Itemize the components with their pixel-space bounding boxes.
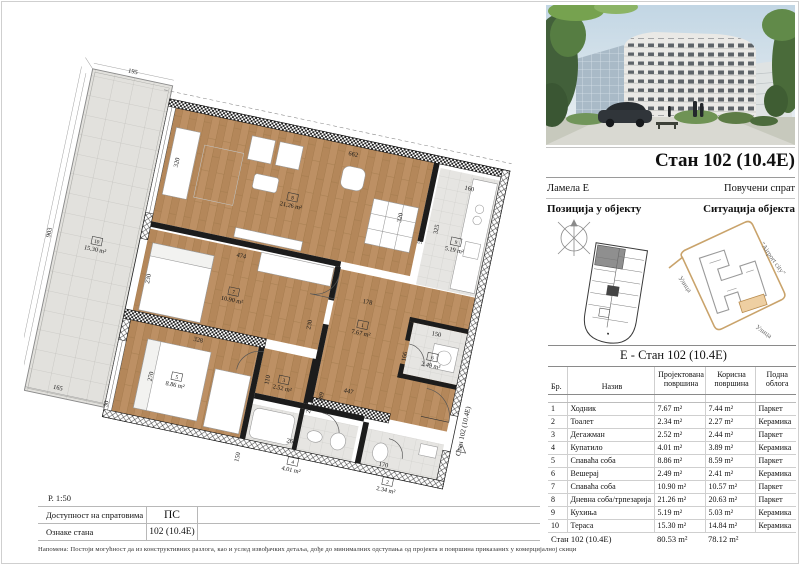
position-section-label: Позиција у објекту — [547, 203, 641, 215]
availability-label: Доступност на спратовима — [38, 507, 146, 523]
table-row: 9Кухиња5.19 m²5.03 m²Керамика — [548, 507, 796, 520]
subtitle-row: Ламела Е Повучени спрат — [547, 183, 795, 194]
plan-rotated-group: 1959031653066232032051116032547423023017… — [24, 57, 530, 494]
disclaimer-note: Напомена: Постоји могућност да из констр… — [38, 546, 783, 553]
building-photo — [546, 5, 795, 145]
table-row: 5Спаваћа соба8.86 m²8.59 m²Паркет — [548, 455, 796, 468]
availability-value: ПС — [146, 507, 198, 523]
col-flooring: Подна облога — [755, 367, 796, 395]
total-label: Стан 102 (10.4Е) — [548, 533, 654, 547]
area-table-body: 1Ходник7.67 m²7.44 m²Паркет2Тоалет2.34 m… — [548, 403, 796, 533]
dimension-label: 150 — [233, 452, 242, 463]
svg-text:4: 4 — [291, 459, 295, 465]
col-useful: Корисна површина — [705, 367, 755, 395]
area-table-header: Бр. Назив Пројектована површина Корисна … — [548, 367, 796, 395]
total-flooring — [755, 533, 796, 547]
dimension-label: 195 — [127, 67, 138, 76]
col-no: Бр. — [548, 367, 567, 395]
availability-row: Доступност на спратовима ПС — [38, 506, 540, 524]
highlighted-unit — [595, 245, 626, 269]
area-table: Е - Стан 102 (10.4Е) Бр. Назив Пројектов… — [548, 345, 796, 546]
table-row: 7Спаваћа соба10.90 m²10.57 m²Паркет — [548, 481, 796, 494]
svg-text:4.01 m²: 4.01 m² — [281, 465, 301, 476]
total-row: Стан 102 (10.4Е) 80.53 m² 78.12 m² — [548, 533, 796, 547]
unit-row: Ознаке стана 102 (10.4Е) — [38, 524, 540, 541]
situation-diagram: "Airport city" Улица Улица — [663, 216, 795, 346]
area-table-title: Е - Стан 102 (10.4Е) — [548, 346, 796, 367]
col-name: Назив — [567, 367, 654, 395]
lamela-label: Ламела Е — [547, 183, 589, 194]
table-row: 1Ходник7.67 m²7.44 m²Паркет — [548, 403, 796, 416]
situation-section-label: Ситуација објекта — [703, 203, 795, 215]
floor-plan: 1959031653066232032051116032547423023017… — [24, 52, 544, 494]
availability-table: Доступност на спратовима ПС Ознаке стана… — [38, 506, 540, 541]
svg-text:2: 2 — [385, 480, 389, 486]
dimension-label: 903 — [45, 227, 54, 238]
divider-under-title — [546, 177, 795, 178]
divider-under-photo — [546, 147, 795, 148]
total-useful: 78.12 m² — [705, 533, 755, 547]
scale-label: Р. 1:50 — [48, 493, 71, 503]
main-building-windows — [624, 38, 756, 116]
sheet-title: Стан 102 (10.4Е) — [546, 150, 795, 172]
section-labels-row: Позиција у објекту Ситуација објекта — [547, 203, 795, 215]
unit-label: Ознаке стана — [38, 524, 146, 540]
apartment-datasheet: 1959031653066232032051116032547423023017… — [0, 0, 800, 565]
position-diagram — [548, 216, 663, 346]
total-projected: 80.53 m² — [654, 533, 705, 547]
spacer-row — [548, 395, 796, 403]
lamela-outline — [581, 243, 648, 346]
floor-label: Повучени спрат — [724, 183, 795, 194]
table-row: 2Тоалет2.34 m²2.27 m²Керамика — [548, 416, 796, 429]
street-label-bottom: Улица — [754, 323, 774, 341]
divider-under-subtitle — [546, 198, 795, 199]
airport-city-label: "Airport city" — [758, 241, 787, 277]
unit-value: 102 (10.4Е) — [146, 524, 198, 540]
compass-icon — [558, 220, 590, 256]
table-row: 3Дегажман2.52 m²2.44 m²Паркет — [548, 429, 796, 442]
table-row: 8Дневна соба/трпезарија21.26 m²20.63 m²П… — [548, 494, 796, 507]
table-row: 4Купатило4.01 m²3.89 m²Керамика — [548, 442, 796, 455]
svg-text:2.34 m²: 2.34 m² — [376, 485, 396, 494]
table-row: 6Вешерај2.49 m²2.41 m²Керамика — [548, 468, 796, 481]
col-projected: Пројектована површина — [654, 367, 705, 395]
table-row: 10Тераса15.30 m²14.84 m²Керамика — [548, 520, 796, 533]
